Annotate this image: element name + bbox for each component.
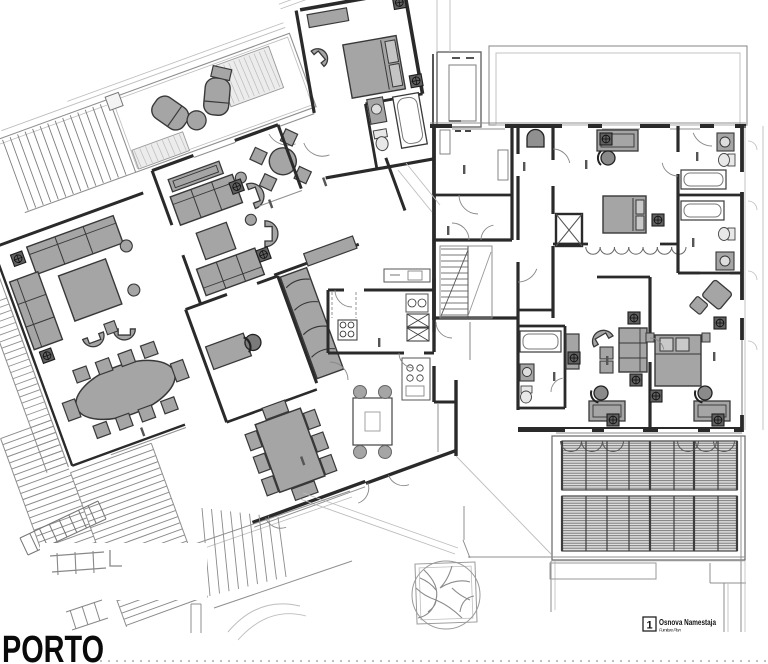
svg-text:Furniture Plan: Furniture Plan (659, 628, 681, 633)
svg-text:1: 1 (646, 620, 652, 632)
svg-text:Osnova Namestaja: Osnova Namestaja (659, 617, 716, 627)
svg-text:PORTO: PORTO (2, 629, 104, 664)
